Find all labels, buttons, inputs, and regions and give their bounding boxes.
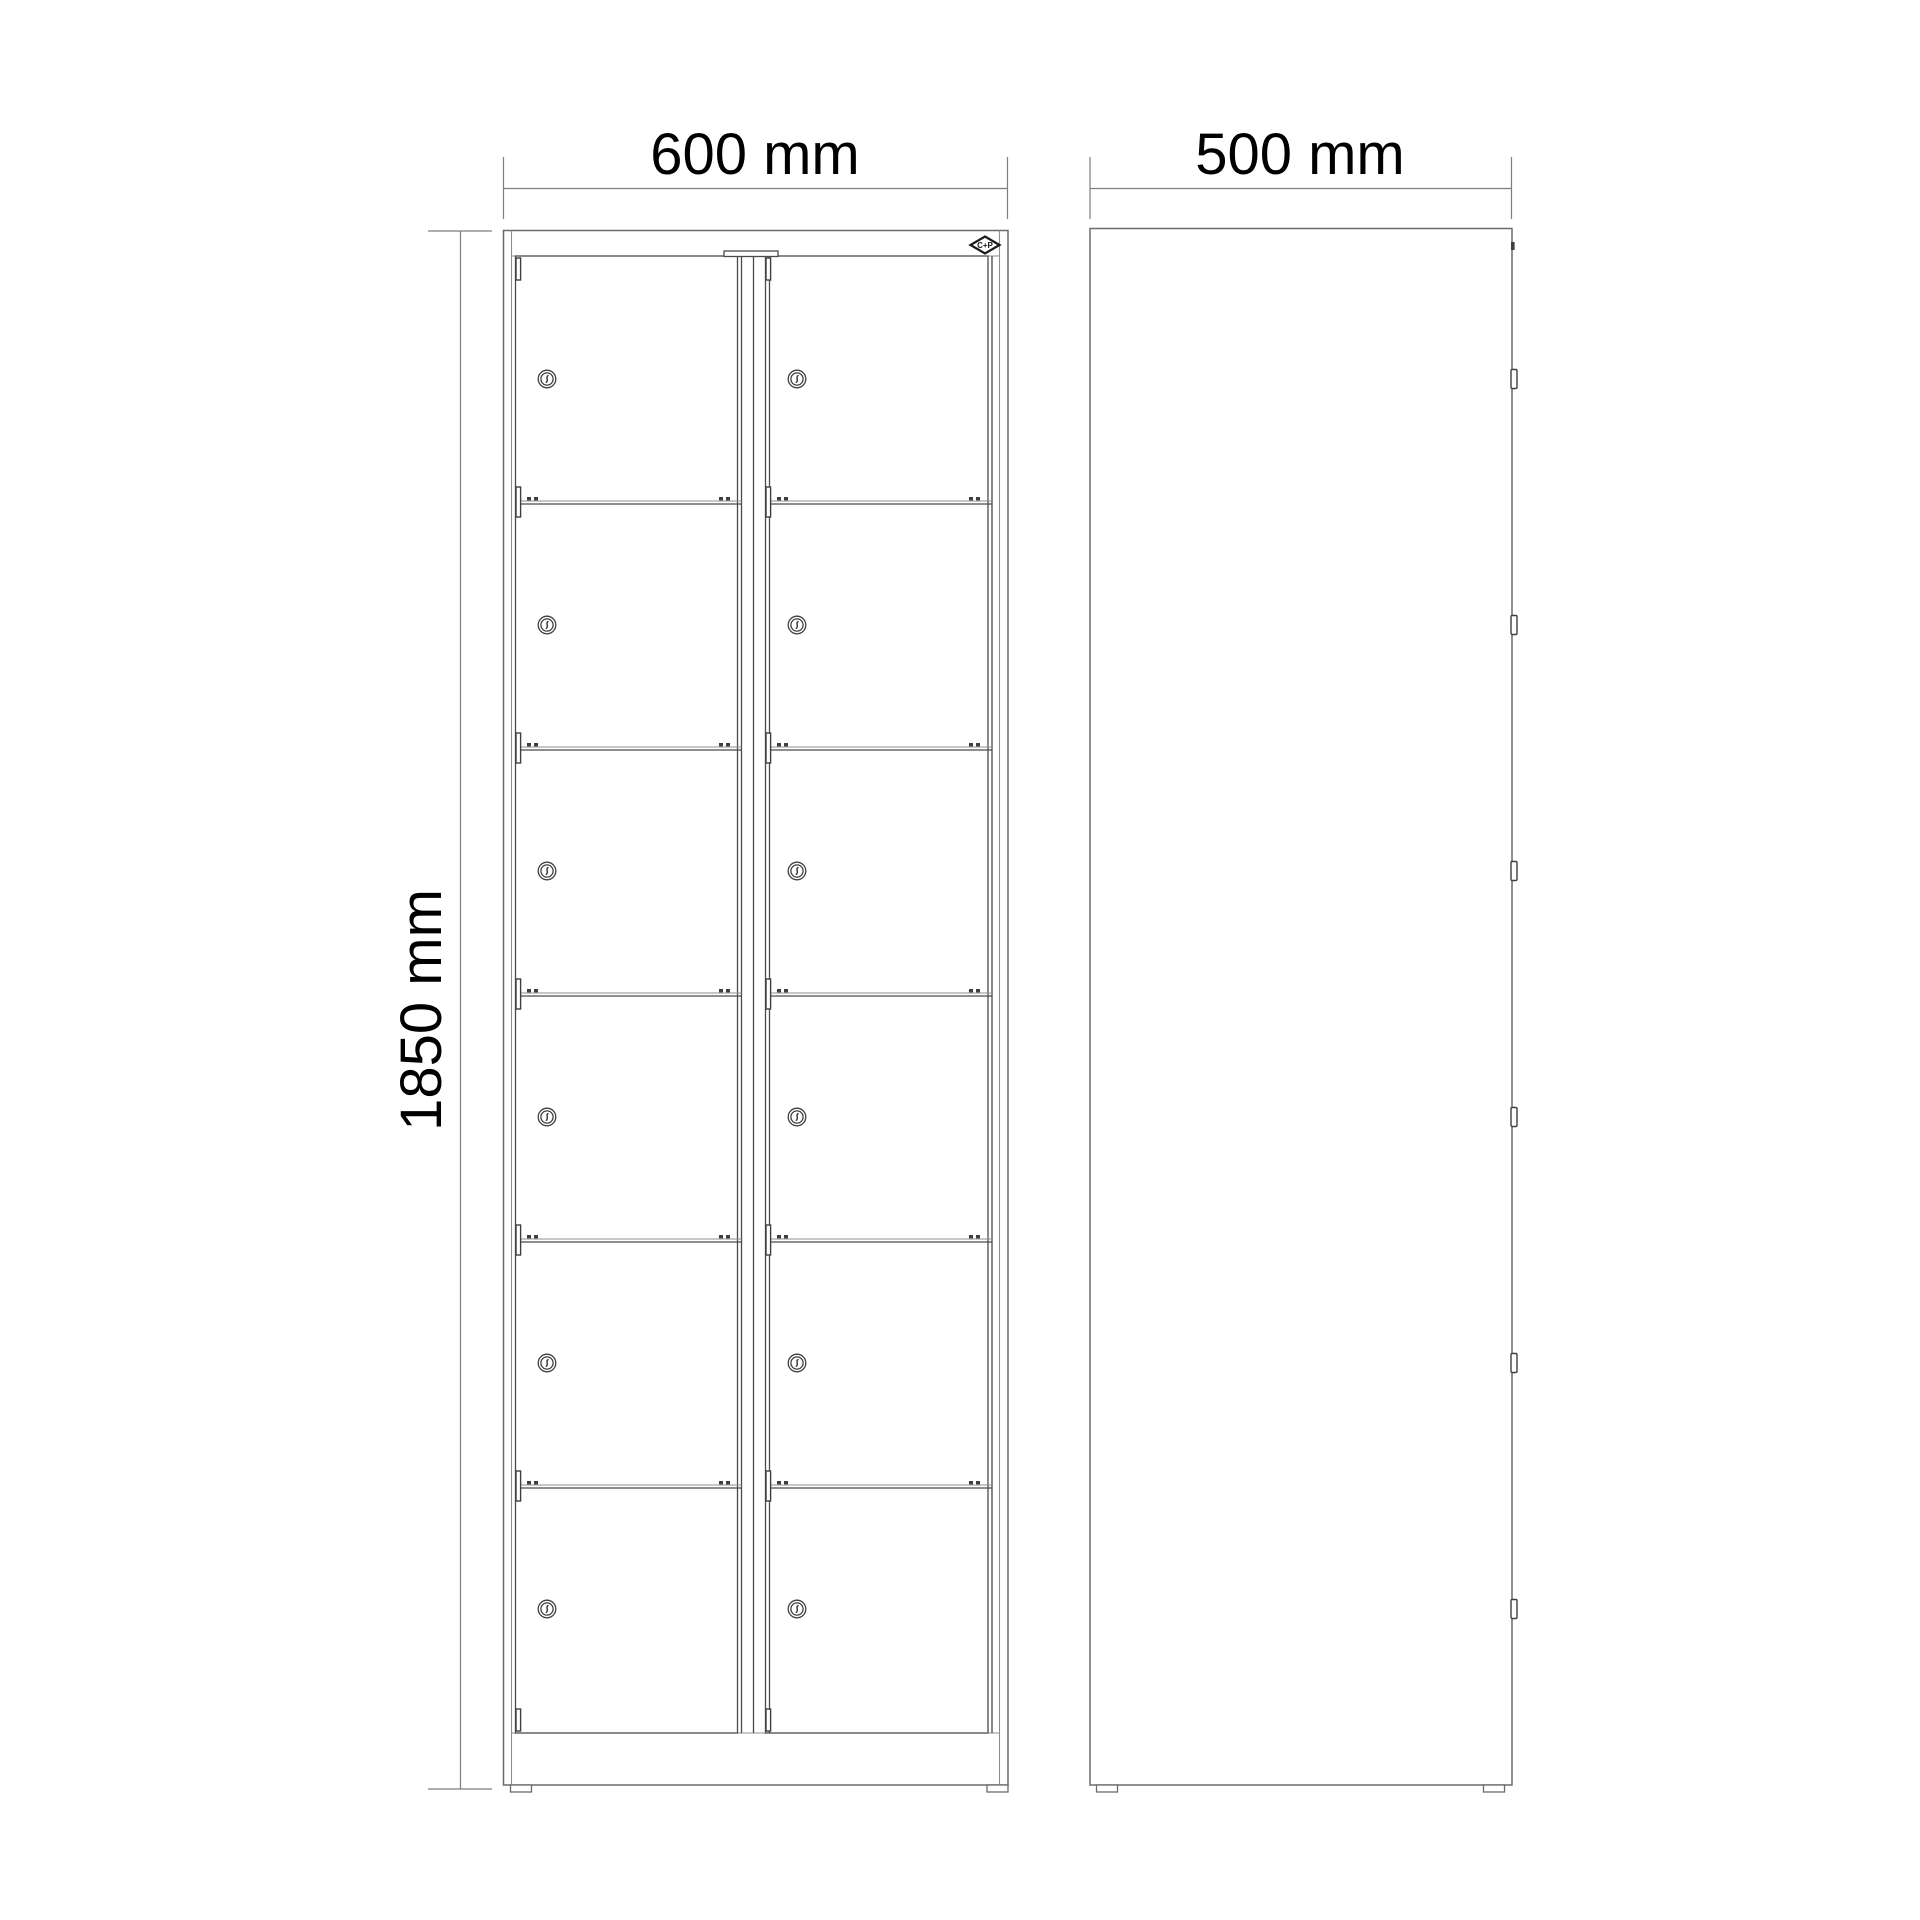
hinge-icon <box>766 1471 771 1501</box>
hinge-icon <box>766 1709 771 1731</box>
lock-tab <box>1511 1600 1517 1619</box>
hinge-icon <box>516 258 521 280</box>
lock-icon <box>788 1108 806 1126</box>
lock-icon <box>788 1354 806 1372</box>
lock-icon <box>538 616 556 634</box>
lock-icon <box>788 616 806 634</box>
lock-icon <box>538 1354 556 1372</box>
lock-icon <box>538 1600 556 1618</box>
lock-icon <box>788 370 806 388</box>
hinge-icon <box>516 733 521 763</box>
height-dimension: 1850 mm <box>389 231 492 1789</box>
depth-dimension-label: 500 mm <box>1195 122 1405 187</box>
shelf-separator <box>516 1235 742 1242</box>
cabinet-foot <box>1097 1785 1118 1792</box>
lock-icon <box>538 370 556 388</box>
lock-icon <box>538 862 556 880</box>
lock-tab <box>1511 862 1517 881</box>
lock-icon <box>788 1600 806 1618</box>
depth-dimension: 500 mm <box>1090 122 1512 219</box>
side-top-hinge-tick <box>1511 242 1515 250</box>
height-dimension-label: 1850 mm <box>389 889 454 1131</box>
logo-label: C+P <box>977 241 993 250</box>
lock-icon <box>788 862 806 880</box>
side-panel <box>1090 229 1512 1786</box>
locker-door-left-column <box>516 256 738 1733</box>
hinge-icon <box>516 979 521 1009</box>
technical-drawing: C+P 600 mm 500 mm <box>0 0 1920 1920</box>
hinge-icon <box>766 487 771 517</box>
shelf-separator <box>766 1481 993 1488</box>
hinge-icon <box>516 1471 521 1501</box>
lock-icon <box>538 1108 556 1126</box>
shelf-separator <box>766 1235 993 1242</box>
shelf-separator <box>766 743 993 750</box>
width-dimension: 600 mm <box>504 122 1008 219</box>
hinge-icon <box>766 1225 771 1255</box>
side-view <box>1090 229 1517 1793</box>
shelf-separator <box>516 1481 742 1488</box>
dimensions: 600 mm 500 mm 1850 mm <box>389 122 1512 1789</box>
lock-tab <box>1511 370 1517 389</box>
hinge-icon <box>516 1225 521 1255</box>
hinge-icon <box>516 487 521 517</box>
logo-icon: C+P <box>971 237 1000 254</box>
front-view: C+P <box>504 231 1009 1793</box>
lock-tab <box>1511 1108 1517 1127</box>
cabinet-foot <box>511 1785 532 1792</box>
shelf-separator <box>766 497 993 504</box>
width-dimension-label: 600 mm <box>650 122 860 187</box>
hinge-icon <box>516 1709 521 1731</box>
cabinet-foot <box>1484 1785 1505 1792</box>
shelf-separator <box>766 989 993 996</box>
lock-tab <box>1511 616 1517 635</box>
hinge-icon <box>766 733 771 763</box>
hinge-icon <box>766 979 771 1009</box>
lock-tab <box>1511 1354 1517 1373</box>
shelf-separator <box>516 743 742 750</box>
cabinet-frame <box>504 231 1009 1786</box>
shelf-separator <box>516 497 742 504</box>
center-post-cap <box>724 251 778 257</box>
hinge-icon <box>766 258 771 280</box>
cabinet-foot <box>987 1785 1008 1792</box>
shelf-separator <box>516 989 742 996</box>
locker-door-right-column <box>766 256 989 1733</box>
